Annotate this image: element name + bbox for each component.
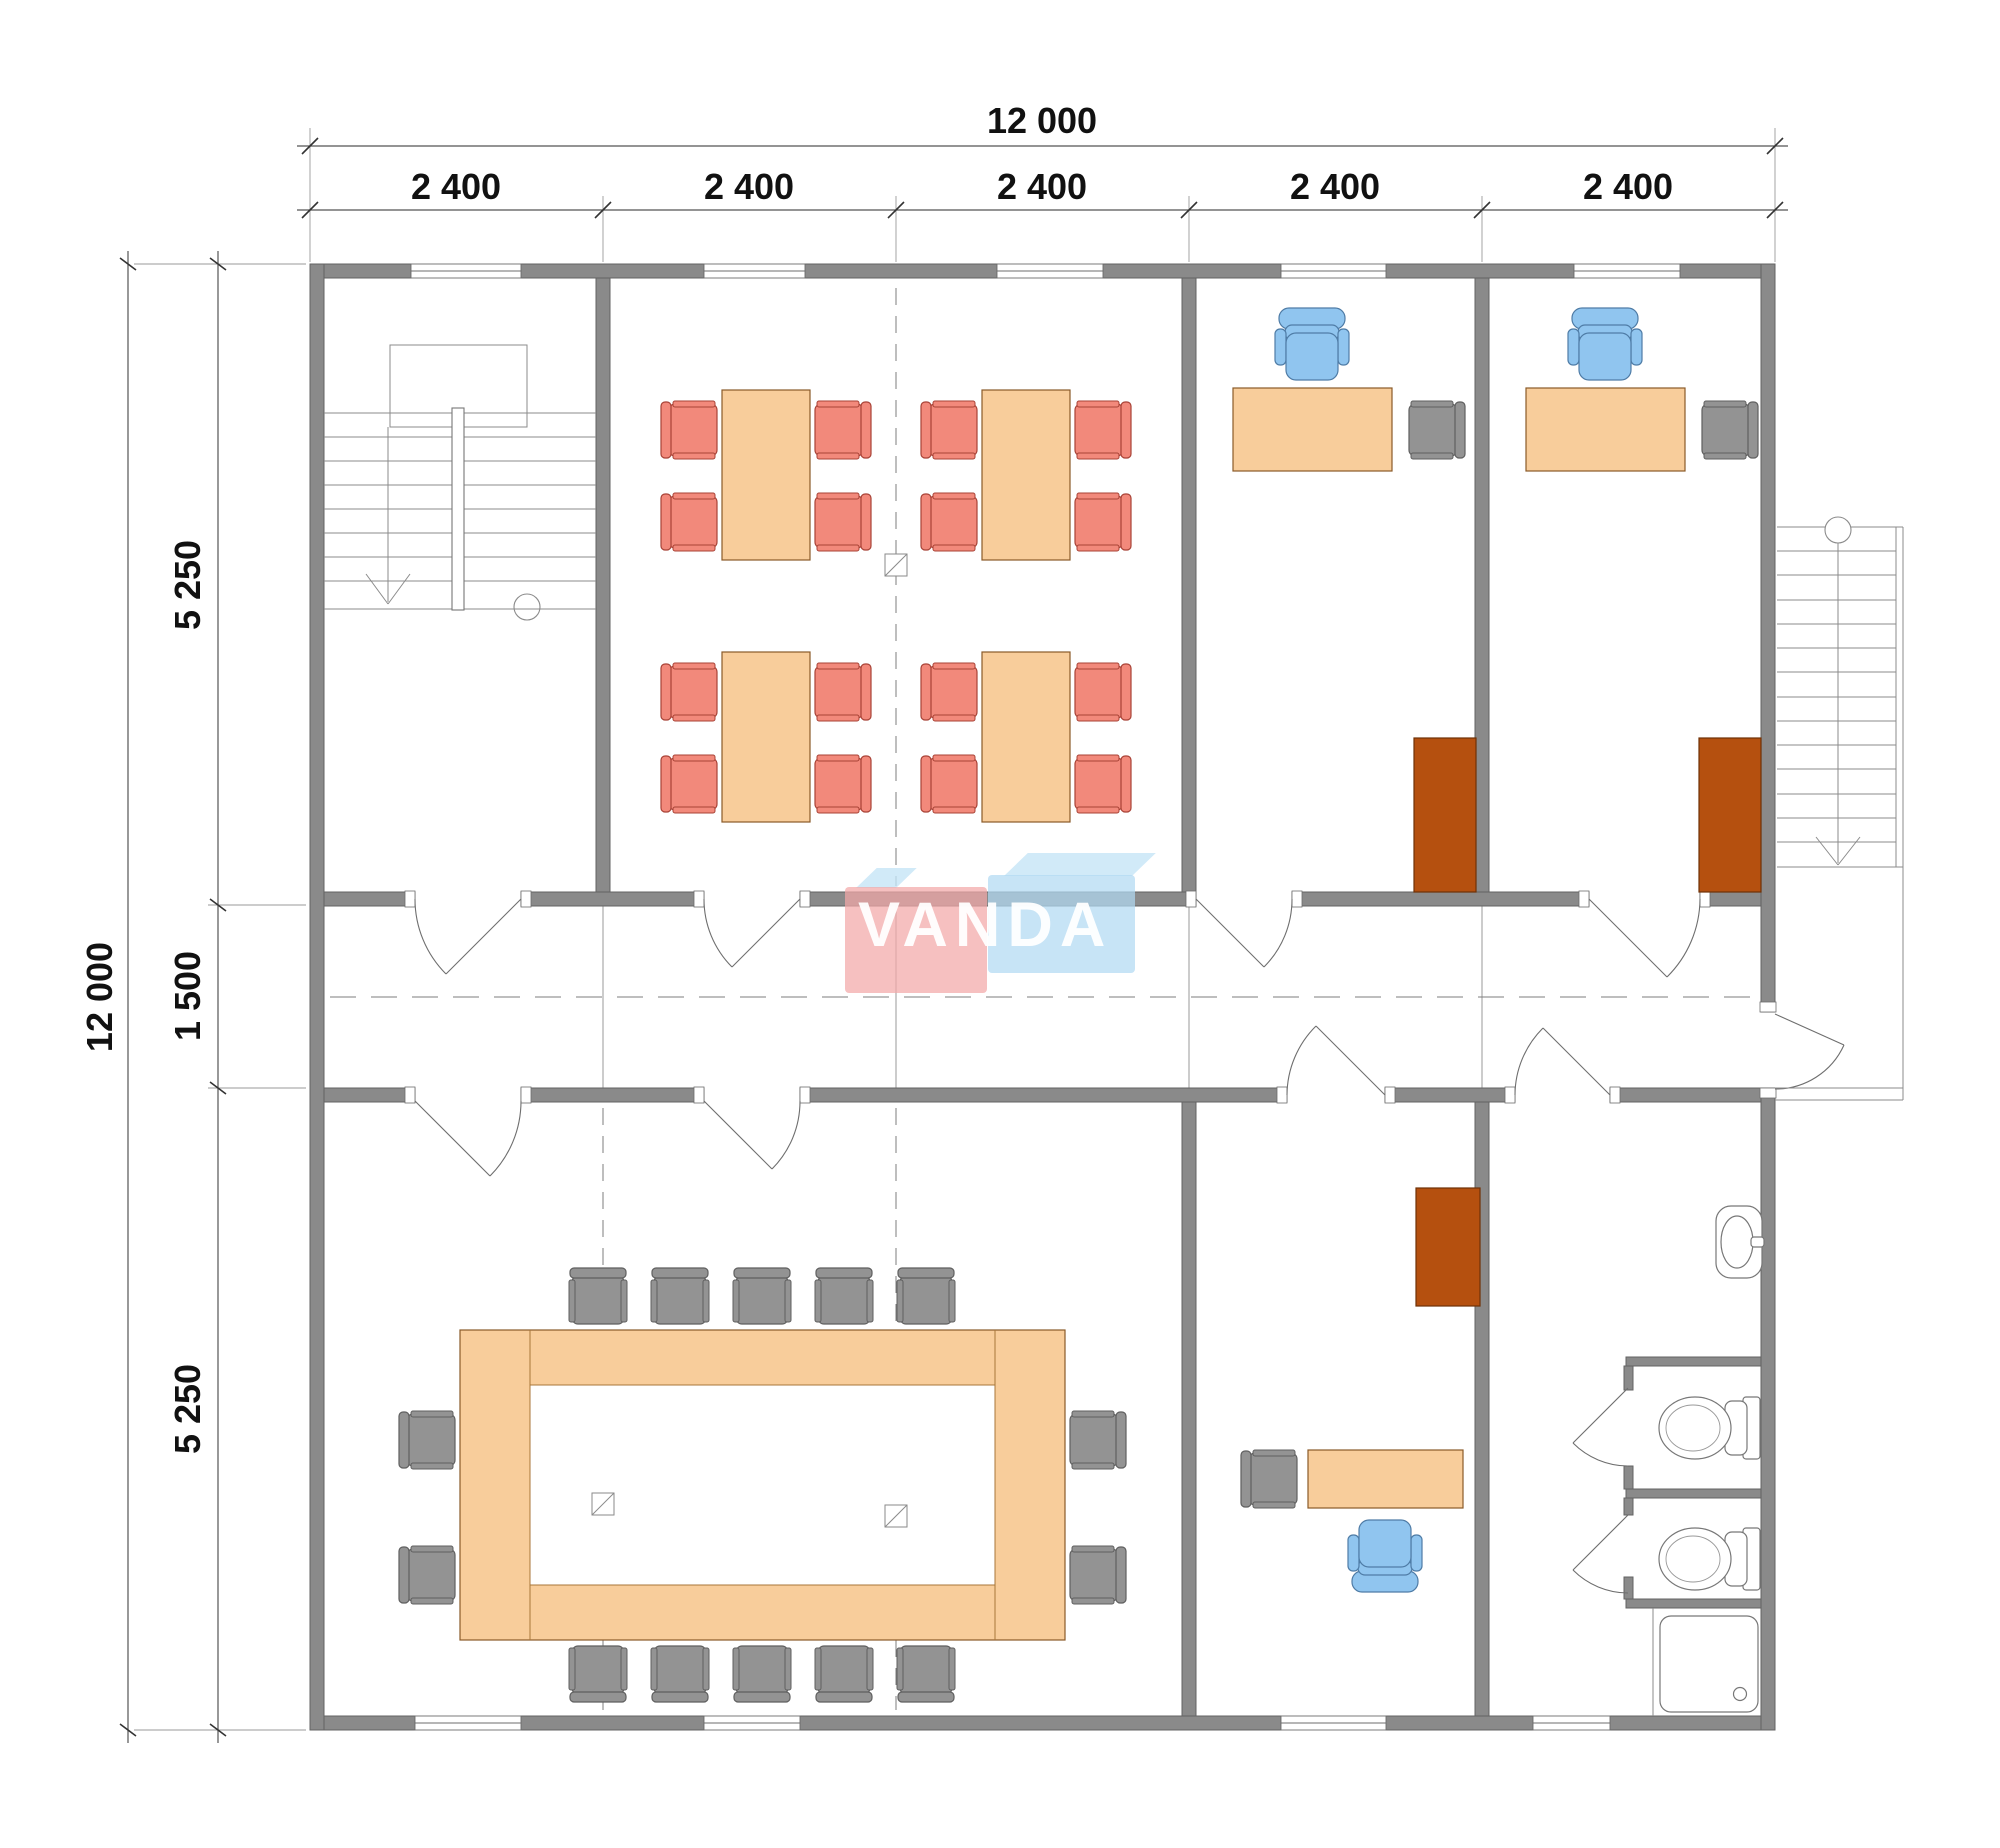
stair-start-marker (514, 594, 540, 620)
floor-plan-canvas: 12 000 2 400 2 400 2 400 2 400 2 400 12 … (0, 0, 2000, 1848)
door-classroom (704, 899, 800, 967)
column-symbol (885, 554, 907, 576)
office-c-furniture (1241, 1188, 1480, 1592)
dim-left-seg-1: 5 250 (167, 540, 208, 630)
window (1533, 1716, 1610, 1730)
stair-railing (452, 408, 464, 610)
conference-chair (733, 1268, 791, 1324)
red-chair (815, 493, 871, 551)
office-desk (1233, 388, 1392, 471)
conference-chair (897, 1646, 955, 1702)
classroom-table (982, 390, 1070, 560)
red-chair (661, 755, 717, 813)
dim-bay-3: 2 400 (997, 166, 1087, 207)
stair-treads (1777, 527, 1903, 867)
stair-start-marker (1825, 517, 1851, 543)
red-chair (1075, 755, 1131, 813)
task-chair-blue (1275, 308, 1349, 380)
staircase-external (1775, 517, 1903, 1100)
dim-bay-4: 2 400 (1290, 166, 1380, 207)
red-chair (661, 663, 717, 721)
office-desk (1526, 388, 1685, 471)
window (1574, 264, 1680, 278)
door-office-a (1196, 899, 1292, 967)
door-bathroom (1515, 1028, 1610, 1095)
column-symbol (592, 1493, 614, 1515)
dim-bay-5: 2 400 (1583, 166, 1673, 207)
red-chair (921, 755, 977, 813)
conference-chair (897, 1268, 955, 1324)
cabinet (1699, 738, 1761, 892)
stair-direction-arrow (1816, 543, 1860, 865)
red-chair (921, 401, 977, 459)
guest-chair (1409, 401, 1465, 459)
conference-chair (1070, 1411, 1126, 1469)
door-stairwell (415, 899, 521, 974)
conference-chair (651, 1268, 709, 1324)
door-conference-1 (415, 1101, 521, 1176)
door-office-b (1589, 899, 1700, 977)
guest-chair (1702, 401, 1758, 459)
red-chair (921, 493, 977, 551)
conference-chair (569, 1646, 627, 1702)
door-stall-2 (1573, 1515, 1628, 1593)
dim-bay-2: 2 400 (704, 166, 794, 207)
dim-left-seg-3: 5 250 (167, 1364, 208, 1454)
window (411, 264, 521, 278)
red-chair (1075, 401, 1131, 459)
office-desk (1308, 1450, 1463, 1508)
door-conference-2 (704, 1101, 800, 1169)
window (997, 264, 1103, 278)
column-symbol (885, 1505, 907, 1527)
red-chair (815, 663, 871, 721)
red-chair (661, 493, 717, 551)
sink (1716, 1206, 1764, 1278)
door-office-c (1287, 1026, 1385, 1095)
conference-chair (569, 1268, 627, 1324)
window (1281, 264, 1386, 278)
window (1281, 1716, 1386, 1730)
dimension-left: 12 000 5 250 1 500 5 250 (79, 251, 306, 1743)
guest-chair (1241, 1450, 1297, 1508)
window (704, 1716, 800, 1730)
conference-chair (733, 1646, 791, 1702)
dim-bay-1: 2 400 (411, 166, 501, 207)
conference-chair (1070, 1546, 1126, 1604)
dim-top-total: 12 000 (987, 100, 1097, 141)
red-chair (921, 663, 977, 721)
dim-left-total: 12 000 (79, 942, 120, 1052)
stair-direction-arrow (366, 427, 410, 604)
cabinet (1414, 738, 1476, 892)
dim-left-seg-2: 1 500 (167, 951, 208, 1041)
office-b-furniture (1526, 308, 1761, 892)
office-a-furniture (1233, 308, 1476, 892)
conference-chair (399, 1546, 455, 1604)
bathroom-fixtures (1653, 1206, 1764, 1716)
conference-chair (651, 1646, 709, 1702)
toilet (1659, 1397, 1760, 1459)
window (415, 1716, 521, 1730)
classroom-table (722, 390, 810, 560)
conference-room-furniture (399, 1268, 1126, 1702)
task-chair-blue (1348, 1520, 1422, 1592)
classroom-table (722, 652, 810, 822)
cabinet (1416, 1188, 1480, 1306)
floor-plan-drawing: 12 000 2 400 2 400 2 400 2 400 2 400 12 … (0, 0, 2000, 1848)
conference-chair (815, 1646, 873, 1702)
shower-tray (1660, 1616, 1758, 1712)
conference-chair (815, 1268, 873, 1324)
red-chair (815, 755, 871, 813)
red-chair (661, 401, 717, 459)
red-chair (1075, 663, 1131, 721)
red-chair (815, 401, 871, 459)
red-chair (1075, 493, 1131, 551)
dimension-top: 12 000 2 400 2 400 2 400 2 400 2 400 (297, 100, 1788, 262)
toilet (1659, 1528, 1760, 1590)
conference-chair (399, 1411, 455, 1469)
task-chair-blue (1568, 308, 1642, 380)
landing-outline (1775, 1088, 1903, 1100)
window (704, 264, 805, 278)
staircase-internal (324, 345, 596, 620)
door-stall-1 (1573, 1388, 1628, 1466)
door-exterior-exit (1775, 1014, 1844, 1089)
classroom-table (982, 652, 1070, 822)
